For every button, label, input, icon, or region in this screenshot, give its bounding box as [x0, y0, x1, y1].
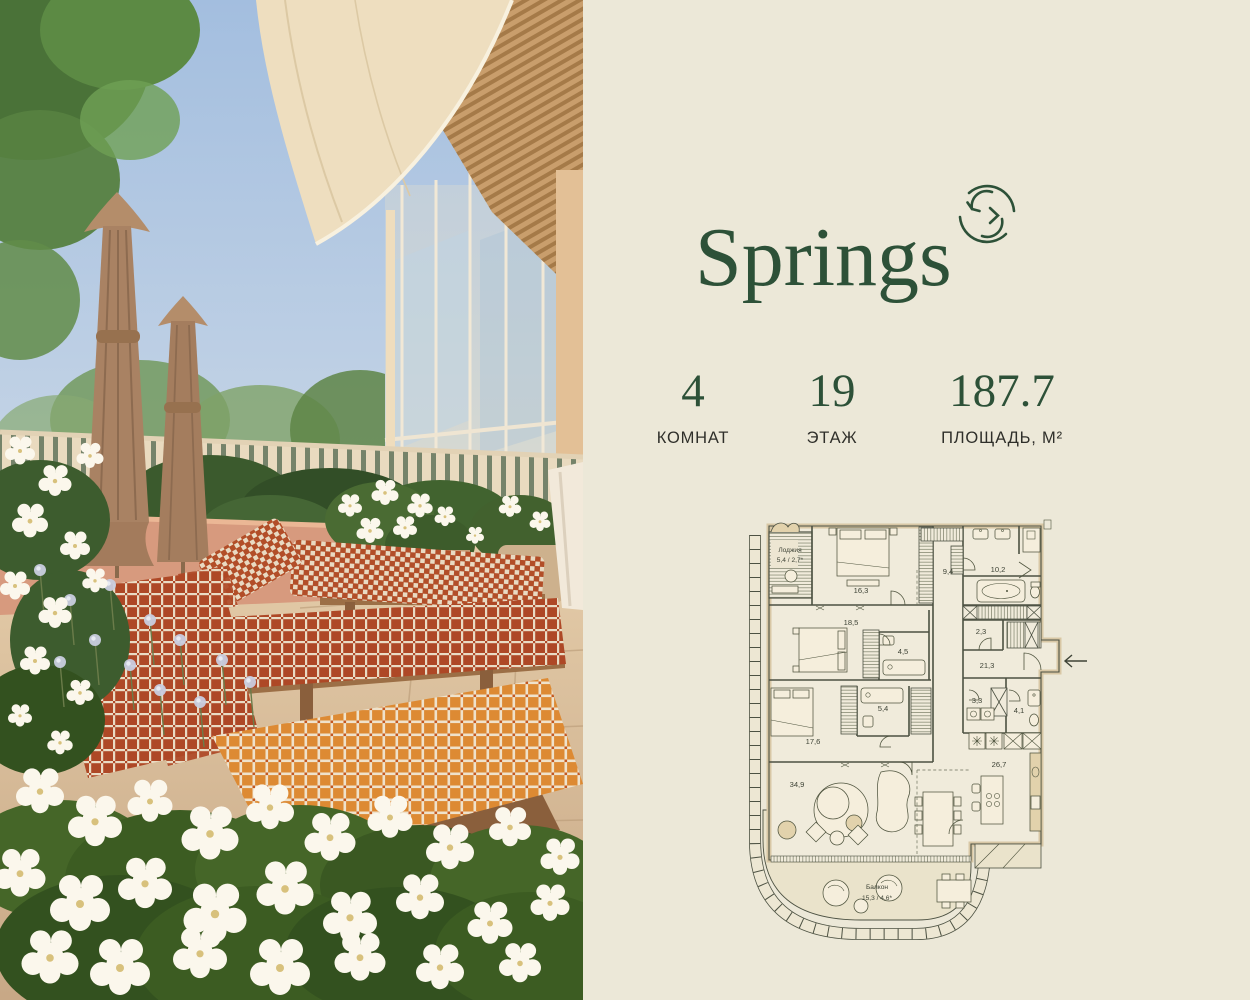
stat-floor-label: ЭТАЖ [807, 429, 858, 448]
room-area-label: 16,3 [854, 586, 869, 595]
window-band [771, 856, 971, 862]
stat-rooms-label: КОМНАТ [657, 429, 730, 448]
stat-floor: 19 ЭТАЖ [807, 368, 858, 448]
terrace-photo-art [0, 0, 583, 1000]
service-ledge [975, 844, 1041, 868]
floor-plan: Лоджия 5,4 / 2,7* [741, 510, 1145, 954]
room-area-label: 3,3 [972, 696, 983, 705]
loggia: Лоджия 5,4 / 2,7* [769, 523, 812, 598]
brand-wordmark: Springs [695, 216, 952, 300]
room-area-label: 4,1 [1014, 706, 1025, 715]
room-area-label: 21,3 [980, 661, 995, 670]
brand-logo-icon [955, 182, 1019, 246]
loggia-name-label: Лоджия [778, 547, 802, 554]
room-area-label: 18,5 [844, 618, 859, 627]
stat-floor-value: 19 [807, 368, 858, 415]
balcony-name-label: Балкон [866, 884, 888, 891]
listing-card[interactable]: Springs 4 КОМНАТ 19 ЭТАЖ 187.7 ПЛОЩАДЬ, … [0, 0, 1250, 1000]
room-area-label: 4,5 [898, 647, 909, 656]
loggia-area-label: 5,4 / 2,7* [777, 557, 804, 564]
room-area-label: 2,3 [976, 627, 987, 636]
stat-rooms-value: 4 [657, 368, 730, 415]
room-area-label: 9,4 [943, 567, 954, 576]
stat-area: 187.7 ПЛОЩАДЬ, М² [941, 368, 1063, 448]
stat-area-value: 187.7 [941, 368, 1063, 415]
room-area-label: 5,4 [878, 704, 889, 713]
terrace-photo [0, 0, 583, 1000]
room-area-label: 10,2 [991, 565, 1006, 574]
facade-detail [1044, 520, 1051, 529]
stat-rooms: 4 КОМНАТ [657, 368, 730, 448]
stat-area-label: ПЛОЩАДЬ, М² [941, 429, 1063, 448]
info-panel: Springs 4 КОМНАТ 19 ЭТАЖ 187.7 ПЛОЩАДЬ, … [583, 0, 1250, 1000]
room-area-label: 26,7 [992, 760, 1007, 769]
room-area-label: 34,9 [790, 780, 805, 789]
balcony-area-label: 15,3 / 4,6* [862, 895, 892, 902]
room-area-label: 17,6 [806, 737, 821, 746]
entrance-arrow-icon [1065, 655, 1087, 667]
